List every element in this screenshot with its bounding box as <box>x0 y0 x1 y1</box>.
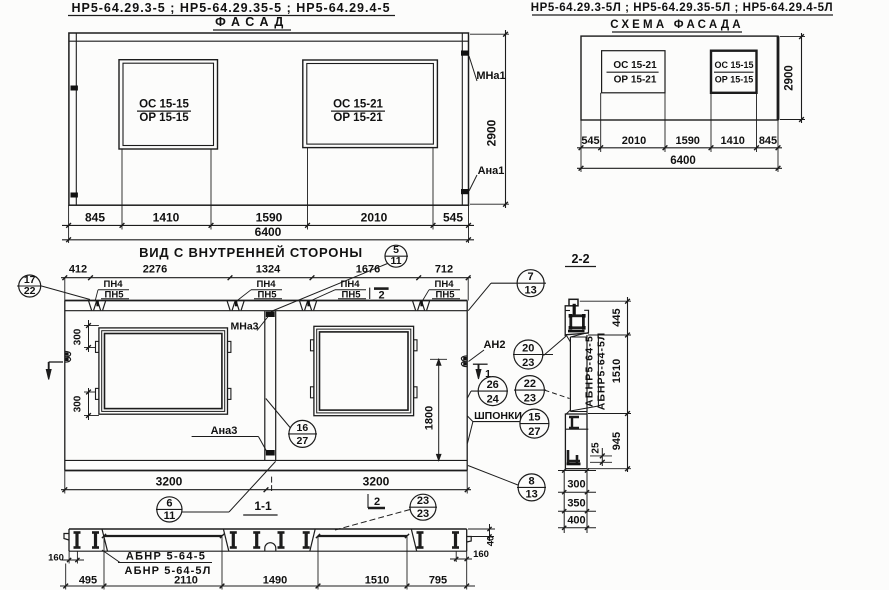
svg-text:22: 22 <box>24 285 36 297</box>
svg-text:ШПОНКИ: ШПОНКИ <box>474 410 522 422</box>
svg-text:350: 350 <box>567 498 585 510</box>
svg-text:1800: 1800 <box>424 406 436 430</box>
svg-text:23: 23 <box>417 495 429 507</box>
svg-text:Ана3: Ана3 <box>211 425 238 437</box>
svg-text:7: 7 <box>528 271 534 283</box>
svg-text:НР5-64.29.3-5Л ; НР5-64.29.35-: НР5-64.29.3-5Л ; НР5-64.29.35-5Л ; НР5-6… <box>531 2 833 14</box>
svg-text:ОР 15-15: ОР 15-15 <box>139 112 189 124</box>
svg-text:1590: 1590 <box>256 211 283 225</box>
svg-text:11: 11 <box>164 510 176 522</box>
svg-text:1676: 1676 <box>356 264 380 276</box>
svg-text:412: 412 <box>69 264 87 276</box>
svg-text:845: 845 <box>85 211 105 225</box>
svg-text:1324: 1324 <box>256 264 281 276</box>
svg-text:40: 40 <box>486 536 497 547</box>
svg-text:ОС 15-15: ОС 15-15 <box>714 60 753 70</box>
svg-text:300: 300 <box>567 479 585 491</box>
svg-text:16: 16 <box>297 422 309 434</box>
svg-text:ОС 15-21: ОС 15-21 <box>333 99 383 111</box>
svg-text:2010: 2010 <box>361 211 388 225</box>
svg-text:1510: 1510 <box>611 359 623 383</box>
svg-text:6400: 6400 <box>255 225 282 239</box>
svg-text:24: 24 <box>487 393 500 405</box>
svg-text:160: 160 <box>473 549 489 560</box>
svg-text:ПН4: ПН4 <box>341 279 361 290</box>
svg-text:НР5-64.29.3-5 ; НР5-64.29.35-: НР5-64.29.3-5 ; НР5-64.29.35-5 ; НР5-64.… <box>71 1 390 15</box>
svg-text:ОР 15-21: ОР 15-21 <box>333 112 383 124</box>
svg-text:3200: 3200 <box>363 475 390 489</box>
svg-text:2: 2 <box>374 496 380 508</box>
svg-text:МНа3: МНа3 <box>230 321 258 333</box>
svg-text:845: 845 <box>759 135 777 147</box>
svg-text:ОР 15-21: ОР 15-21 <box>614 75 657 86</box>
svg-text:2276: 2276 <box>143 264 167 276</box>
svg-text:АБНР 5-64-5: АБНР 5-64-5 <box>126 551 206 563</box>
svg-text:ВИД С ВНУТРЕННЕЙ СТОРОНЫ: ВИД С ВНУТРЕННЕЙ СТОРОНЫ <box>139 245 363 260</box>
svg-text:15: 15 <box>528 412 540 424</box>
svg-text:8: 8 <box>529 475 535 487</box>
svg-text:ПН4: ПН4 <box>257 279 277 290</box>
svg-text:20: 20 <box>522 343 534 355</box>
svg-text:13: 13 <box>524 285 536 297</box>
svg-text:ПН4: ПН4 <box>435 279 455 290</box>
svg-text:2-2: 2-2 <box>571 252 589 266</box>
svg-text:712: 712 <box>435 264 453 276</box>
svg-text:27: 27 <box>528 426 540 438</box>
svg-text:13: 13 <box>525 489 537 501</box>
svg-text:МНа1: МНа1 <box>476 70 505 82</box>
svg-text:445: 445 <box>611 308 623 326</box>
svg-text:6400: 6400 <box>670 155 696 167</box>
svg-text:26: 26 <box>487 379 499 391</box>
svg-text:2110: 2110 <box>174 575 198 587</box>
svg-text:АН2: АН2 <box>483 339 505 351</box>
svg-text:Ана1: Ана1 <box>478 165 505 177</box>
svg-text:АБНР5-64-5: АБНР5-64-5 <box>584 335 596 407</box>
svg-text:300: 300 <box>73 395 84 412</box>
svg-text:ПН4: ПН4 <box>104 279 124 290</box>
svg-text:23: 23 <box>524 392 536 404</box>
svg-text:23: 23 <box>522 357 534 369</box>
svg-text:ОС 15-15: ОС 15-15 <box>139 99 189 111</box>
svg-text:22: 22 <box>524 378 536 390</box>
svg-text:3200: 3200 <box>156 475 183 489</box>
svg-text:1-1: 1-1 <box>254 499 272 513</box>
svg-text:545: 545 <box>581 135 599 147</box>
svg-text:6: 6 <box>166 497 172 509</box>
svg-text:АБНР 5-64-5Л: АБНР 5-64-5Л <box>125 565 212 577</box>
svg-text:ОР 15-15: ОР 15-15 <box>715 75 754 85</box>
svg-text:27: 27 <box>297 435 309 447</box>
svg-text:2900: 2900 <box>485 119 499 146</box>
svg-text:945: 945 <box>611 432 623 450</box>
svg-text:300: 300 <box>73 328 84 345</box>
svg-text:1410: 1410 <box>153 211 180 225</box>
svg-text:23: 23 <box>417 508 429 520</box>
svg-text:ФАСАД: ФАСАД <box>215 15 289 29</box>
svg-text:495: 495 <box>79 575 97 587</box>
svg-text:2900: 2900 <box>784 65 796 91</box>
svg-text:400: 400 <box>567 515 585 527</box>
svg-text:11: 11 <box>390 255 401 267</box>
svg-text:1510: 1510 <box>365 575 389 587</box>
svg-text:545: 545 <box>443 211 463 225</box>
svg-text:2010: 2010 <box>622 135 646 147</box>
svg-text:1410: 1410 <box>720 135 744 147</box>
svg-text:795: 795 <box>429 575 447 587</box>
svg-text:1490: 1490 <box>263 575 287 587</box>
svg-text:ОС 15-21: ОС 15-21 <box>613 60 657 71</box>
svg-text:25: 25 <box>591 442 602 454</box>
svg-text:1590: 1590 <box>675 135 699 147</box>
svg-text:АБНР5-64-5Л: АБНР5-64-5Л <box>596 332 608 410</box>
svg-text:160: 160 <box>48 553 64 564</box>
svg-text:СХЕМА ФАСАДА: СХЕМА ФАСАДА <box>610 19 743 31</box>
